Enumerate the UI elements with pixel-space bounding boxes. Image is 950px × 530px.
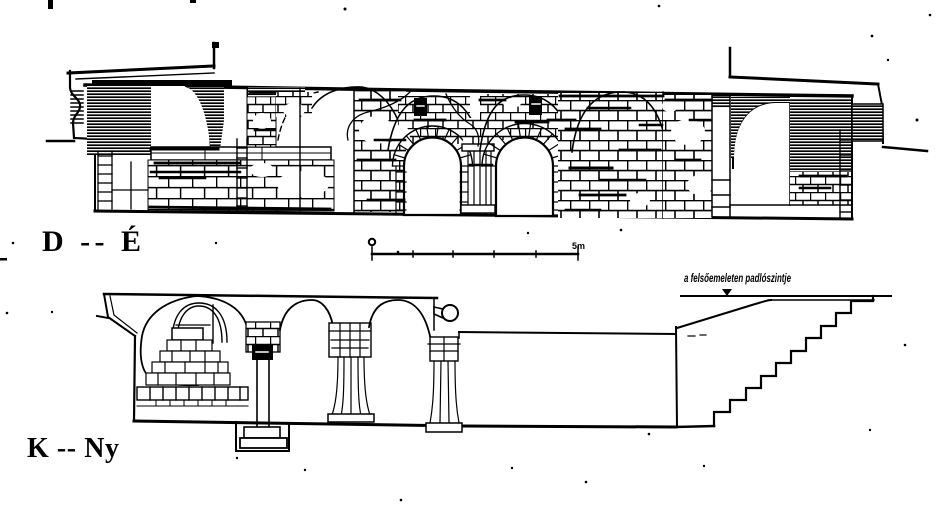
svg-text:a felsőemeleten padlószintje: a felsőemeleten padlószintje [684, 271, 791, 285]
svg-text:K -- Ny: K -- Ny [27, 433, 119, 464]
svg-text:5m: 5m [572, 241, 585, 251]
